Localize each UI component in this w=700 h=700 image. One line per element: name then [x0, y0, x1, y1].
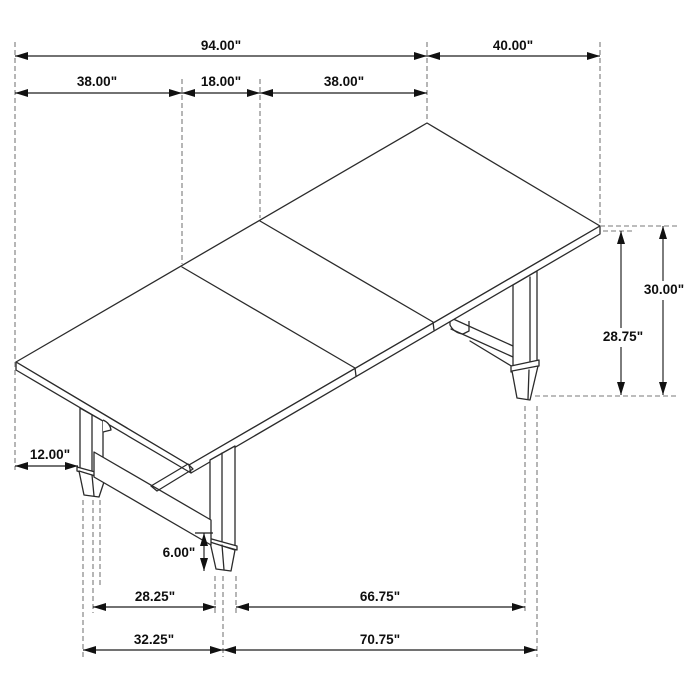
dim-label-section-left: 38.00": [77, 74, 117, 89]
dim-label-front-gap-inner: 28.25": [135, 589, 175, 604]
dim-label-leg-inset: 12.00": [30, 447, 70, 462]
dim-label-long-gap-outer: 70.75": [360, 632, 400, 647]
dim-label-front-gap-outer: 32.25": [134, 632, 174, 647]
dim-label-long-gap-inner: 66.75": [360, 589, 400, 604]
diagram-svg: 94.00" 40.00" 38.00" 18.00" 38.00" 30.00…: [0, 0, 700, 700]
dim-label-end-width: 40.00": [493, 38, 533, 53]
dim-label-overall-length: 94.00": [201, 38, 241, 53]
dim-label-section-right: 38.00": [324, 74, 364, 89]
dim-label-leaf-width: 18.00": [201, 74, 241, 89]
dim-label-foot-height: 6.00": [163, 545, 196, 560]
dim-label-height-underside: 28.75": [603, 329, 643, 344]
dim-label-height-top: 30.00": [644, 282, 684, 297]
table-dimension-diagram: 94.00" 40.00" 38.00" 18.00" 38.00" 30.00…: [0, 0, 700, 700]
far-leg: [513, 271, 537, 367]
